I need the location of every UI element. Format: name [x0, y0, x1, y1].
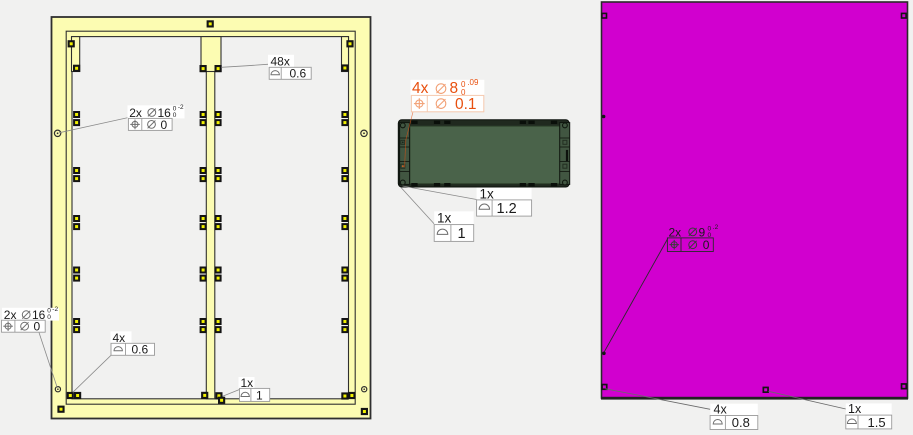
svg-text:1.5: 1.5 — [868, 415, 886, 430]
svg-text:8: 8 — [450, 80, 459, 97]
svg-text:0.6: 0.6 — [290, 67, 307, 81]
svg-text:1: 1 — [256, 389, 263, 403]
svg-text:4x: 4x — [113, 331, 126, 345]
svg-text:2x: 2x — [129, 106, 142, 120]
svg-text:-2: -2 — [178, 104, 184, 111]
svg-text:4x: 4x — [714, 402, 728, 416]
svg-text:1x: 1x — [241, 376, 254, 390]
svg-text:-2: -2 — [52, 306, 58, 313]
svg-text:1x: 1x — [437, 210, 452, 225]
svg-text:0.6: 0.6 — [132, 343, 149, 357]
svg-text:48x: 48x — [271, 54, 290, 68]
svg-text:1x: 1x — [848, 402, 862, 416]
svg-text:0: 0 — [161, 118, 168, 132]
svg-text:1x: 1x — [480, 186, 495, 201]
svg-text:0.1: 0.1 — [455, 96, 477, 113]
svg-text:4x: 4x — [412, 80, 429, 97]
svg-text:1.2: 1.2 — [497, 201, 517, 217]
svg-text:0: 0 — [47, 314, 51, 321]
svg-text:1: 1 — [458, 226, 466, 242]
svg-text:.09: .09 — [467, 78, 479, 87]
svg-text:0: 0 — [34, 320, 41, 334]
svg-text:0: 0 — [703, 238, 710, 252]
svg-text:.2: .2 — [713, 224, 719, 231]
svg-text:0.8: 0.8 — [732, 415, 750, 430]
svg-text:2x: 2x — [669, 225, 682, 239]
svg-text:0: 0 — [173, 112, 177, 119]
